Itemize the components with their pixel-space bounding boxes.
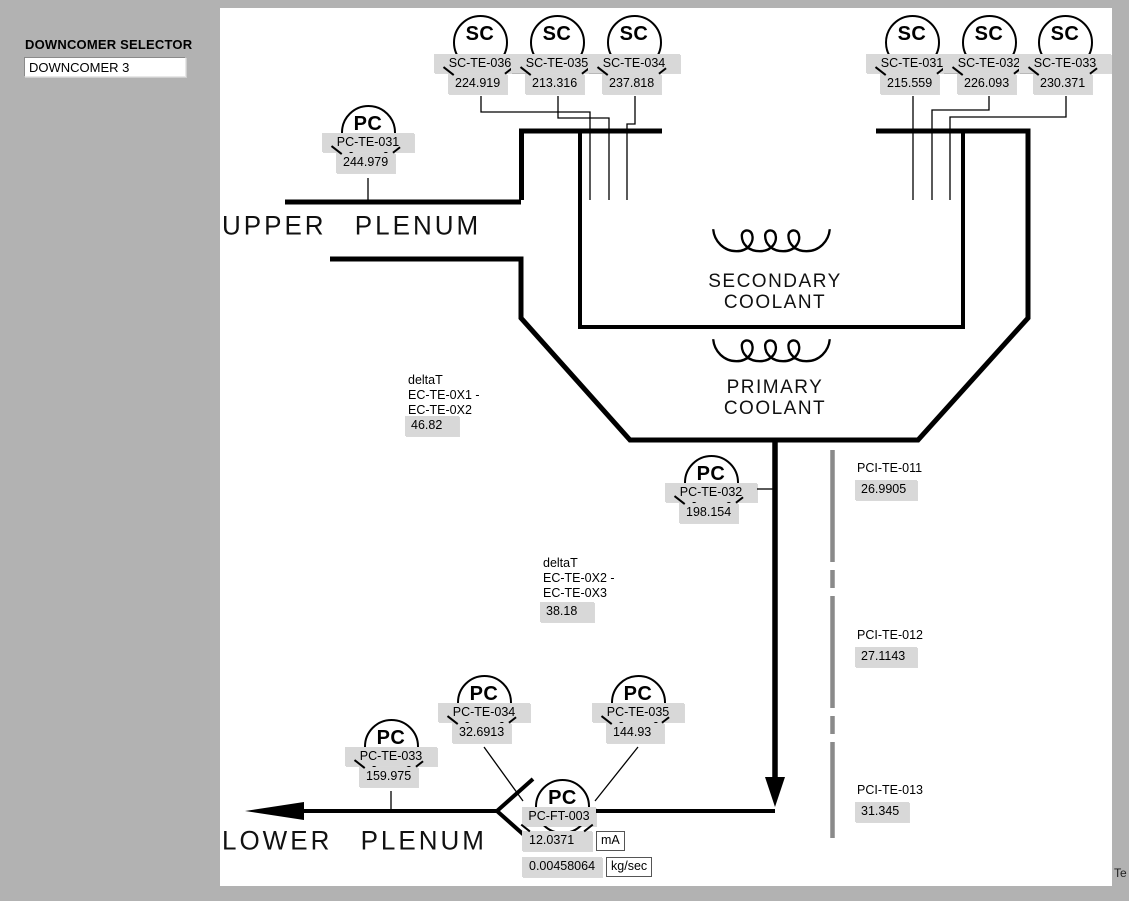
front-panel: DOWNCOMER SELECTOR xyxy=(0,0,1129,901)
pci-te-013-value: 31.345 xyxy=(855,802,909,822)
delta-t-2-value: 38.18 xyxy=(540,602,594,622)
instrument-kind: PC xyxy=(686,457,737,486)
sensor-pc-te-031: PC PC-TE-031 244.979 xyxy=(322,105,414,173)
flow-current-unit: mA xyxy=(596,831,625,851)
primary-coolant-label: PRIMARY COOLANT xyxy=(665,377,885,419)
instrument-value: 32.6913 xyxy=(452,723,511,743)
downcomer-selector-input[interactable] xyxy=(24,57,186,77)
delta-t-line: EC-TE-0X2 - xyxy=(543,571,615,586)
pci-te-011-value: 26.9905 xyxy=(855,480,917,500)
pci-te-012-label: PCI-TE-012 xyxy=(857,628,923,643)
downcomer-selector-label: DOWNCOMER SELECTOR xyxy=(25,37,192,52)
sensor-sc-te-033: SC SC-TE-033 230.371 xyxy=(1019,15,1111,94)
pci-te-013-label: PCI-TE-013 xyxy=(857,783,923,798)
instrument-value: 213.316 xyxy=(525,74,584,94)
sensor-pc-te-033: PC PC-TE-033 159.975 xyxy=(345,719,437,787)
instrument-kind: PC xyxy=(366,721,417,750)
delta-t-1-label: deltaT EC-TE-0X1 - EC-TE-0X2 xyxy=(408,373,480,418)
sensor-pc-te-035: PC PC-TE-035 144.93 xyxy=(592,675,684,743)
primary-coolant-line1: PRIMARY xyxy=(665,377,885,398)
sensor-pc-ft-003: PC PC-FT-003 12.0371mA 0.00458064kg/sec xyxy=(516,779,666,877)
instrument-value: 144.93 xyxy=(606,723,664,743)
secondary-coolant-line2: COOLANT xyxy=(665,292,885,313)
flow-rate-unit: kg/sec xyxy=(606,857,652,877)
instrument-value: 159.975 xyxy=(359,767,418,787)
flow-current-value: 12.0371 xyxy=(522,831,592,851)
flow-rate-value: 0.00458064 xyxy=(522,857,602,877)
upper-plenum-label: UPPER PLENUM xyxy=(222,209,481,241)
instrument-kind: SC xyxy=(887,17,938,46)
instrument-value: 198.154 xyxy=(679,503,738,523)
instrument-kind: PC xyxy=(537,781,588,810)
delta-t-line: deltaT xyxy=(543,556,615,571)
instrument-kind: SC xyxy=(1040,17,1091,46)
delta-t-2-label: deltaT EC-TE-0X2 - EC-TE-0X3 xyxy=(543,556,615,601)
pci-te-011-label: PCI-TE-011 xyxy=(857,461,922,476)
sensor-sc-te-034: SC SC-TE-034 237.818 xyxy=(588,15,680,94)
delta-t-line: EC-TE-0X3 xyxy=(543,586,615,601)
instrument-kind: SC xyxy=(532,17,583,46)
clipped-edge-text: Te xyxy=(1114,866,1127,880)
delta-t-line: deltaT xyxy=(408,373,480,388)
instrument-kind: SC xyxy=(964,17,1015,46)
delta-t-1-value: 46.82 xyxy=(405,416,459,436)
instrument-value: 226.093 xyxy=(957,74,1016,94)
instrument-kind: PC xyxy=(613,677,664,706)
instrument-value: 230.371 xyxy=(1033,74,1092,94)
instrument-kind: PC xyxy=(343,107,394,136)
instrument-kind: PC xyxy=(459,677,510,706)
instrument-value: 237.818 xyxy=(602,74,661,94)
instrument-kind: SC xyxy=(455,17,506,46)
lower-plenum-label: LOWER PLENUM xyxy=(222,824,487,856)
instrument-value: 244.979 xyxy=(336,153,395,173)
instrument-tag: PC-FT-003 xyxy=(522,807,596,826)
instrument-kind: SC xyxy=(609,17,660,46)
sensor-pc-te-032: PC PC-TE-032 198.154 xyxy=(665,455,757,523)
instrument-value: 215.559 xyxy=(880,74,939,94)
delta-t-line: EC-TE-0X1 - xyxy=(408,388,480,403)
sensor-pc-te-034: PC PC-TE-034 32.6913 xyxy=(438,675,530,743)
pci-te-012-value: 27.1143 xyxy=(855,647,917,667)
instrument-value: 224.919 xyxy=(448,74,507,94)
secondary-coolant-line1: SECONDARY xyxy=(665,271,885,292)
primary-coolant-line2: COOLANT xyxy=(665,398,885,419)
secondary-coolant-label: SECONDARY COOLANT xyxy=(665,271,885,313)
